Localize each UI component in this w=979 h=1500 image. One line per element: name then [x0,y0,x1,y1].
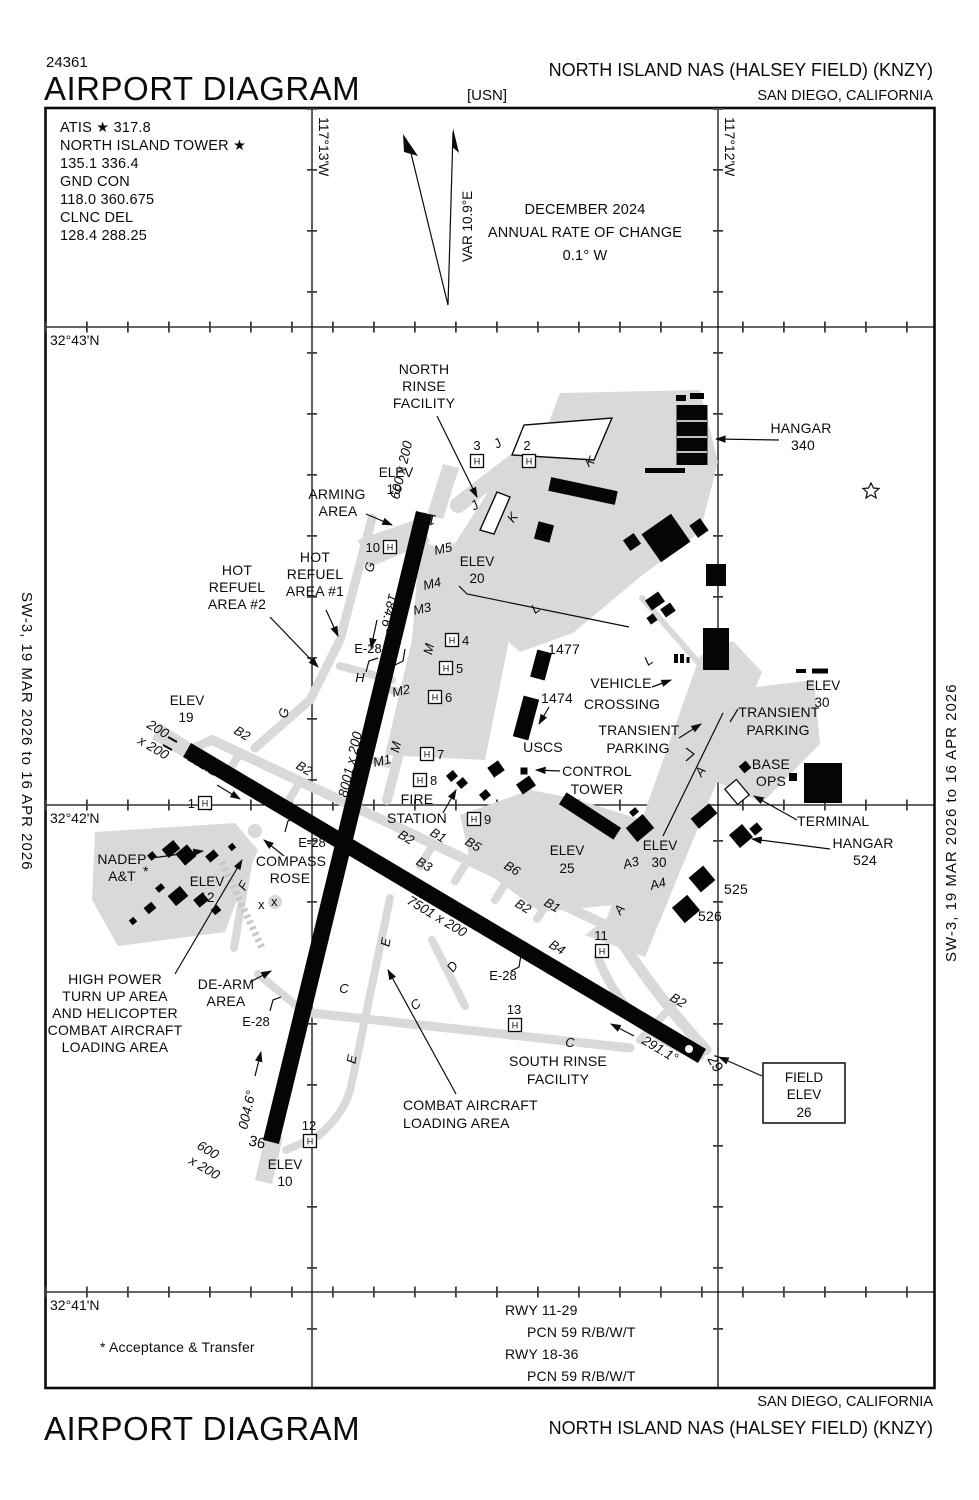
svg-text:H: H [443,663,450,673]
svg-text:x 200: x 200 [186,1152,223,1183]
terminal-arrow [754,796,797,820]
hangar-524-arrow [752,839,830,849]
heading-004-arrow [255,1052,261,1076]
gnd-con-label: GND CON [60,174,130,190]
svg-text:TOWER: TOWER [571,781,624,797]
elev-label: ELEV [460,554,495,569]
footer-airport-name: NORTH ISLAND NAS (HALSEY FIELD) (KNZY) [549,1418,933,1438]
page-title: AIRPORT DIAGRAM [44,70,360,107]
building-1477-label: 1477 [548,641,580,657]
svg-text:3: 3 [473,438,480,453]
nadep-asterisk: * [143,863,149,879]
nadep-apron [92,823,258,946]
hot-refuel-2-label: HOT [222,562,252,578]
hangar-524-building [729,824,753,848]
field-elevation-box: FIELD ELEV 26 [763,1063,845,1123]
svg-text:12: 12 [302,1118,316,1133]
control-tower-building [521,768,528,775]
elev-label: ELEV [643,838,678,853]
helipad-7: H7 [421,747,445,762]
acceptance-note: * Acceptance & Transfer [100,1339,255,1355]
true-north-arrowhead-icon [453,128,460,153]
svg-text:REFUEL: REFUEL [209,579,265,595]
svg-text:H: H [471,814,478,824]
control-tower-label: CONTROL [562,763,632,779]
arming-area-label: ARMING [308,486,365,502]
clnc-del-label: CLNC DEL [60,210,133,226]
svg-text:19: 19 [386,482,401,497]
star-icon [863,483,879,498]
svg-text:PCN 59 R/B/W/T: PCN 59 R/B/W/T [527,1368,636,1384]
transient-parking-label: TRANSIENT [738,704,819,720]
svg-text:H: H [387,542,394,552]
helipad-5: H5 [440,661,464,676]
svg-text:OPS: OPS [756,773,786,789]
svg-text:PARKING: PARKING [606,740,669,756]
svg-text:AREA #1: AREA #1 [286,583,344,599]
svg-text:25: 25 [559,861,574,876]
nadep-label: NADEP [97,851,146,867]
svg-text:26: 26 [796,1105,811,1120]
magnetic-north-arrow [409,145,448,305]
svg-text:9: 9 [484,812,491,827]
north-rinse-label: NORTH [399,361,450,377]
svg-text:13: 13 [507,1002,521,1017]
svg-text:H: H [474,456,481,466]
helipad-4: H4 [446,633,470,648]
svg-text:H: H [599,946,606,956]
svg-text:H: H [307,1136,314,1146]
svg-text:10: 10 [277,1174,292,1189]
svg-text:524: 524 [853,852,877,868]
svg-text:LOADING AREA: LOADING AREA [403,1115,510,1131]
vehicle-crossing-label: VEHICLE [590,675,651,691]
svg-text:ELEV: ELEV [787,1087,822,1102]
building-525-label: 525 [724,881,748,897]
hot-refuel-2-arrow [270,617,318,667]
svg-text:AND HELICOPTER: AND HELICOPTER [52,1005,178,1021]
taxiway-label-b3: B3 [414,854,436,875]
longitude-label-12: 117°12'W [722,117,738,177]
latitude-label-43: 32°43'N [50,332,100,348]
svg-text:LOADING AREA: LOADING AREA [62,1039,169,1055]
svg-text:FIELD: FIELD [785,1070,824,1085]
svg-text:REFUEL: REFUEL [287,566,343,582]
footer-title: AIRPORT DIAGRAM [44,1410,360,1447]
svg-text:FACILITY: FACILITY [393,395,456,411]
taxiway-label-l: L [641,652,656,668]
svg-text:H: H [449,635,456,645]
arresting-gear-label: E-28 [242,1014,269,1029]
hangar-524-label: HANGAR [832,835,893,851]
org-label: [USN] [467,87,507,104]
helipad-1: H1 [188,796,212,811]
svg-text:TURN UP AREA: TURN UP AREA [62,988,168,1004]
building-1474 [513,696,539,741]
building-1474-label: 1474 [541,690,573,706]
svg-text:2: 2 [523,438,530,453]
chart-stock-number: 24361 [46,54,88,71]
svg-text:AREA #2: AREA #2 [208,596,266,612]
svg-text:PCN 59 R/B/W/T: PCN 59 R/B/W/T [527,1324,636,1340]
taxiway-label-e: E [377,936,393,947]
taxiway-c [302,1012,630,1048]
svg-text:4: 4 [462,633,469,648]
svg-text:5: 5 [456,661,463,676]
svg-text:7: 7 [437,747,444,762]
svg-text:1: 1 [188,796,195,811]
helipad-11: H11 [594,928,608,958]
variation-date: DECEMBER 2024 [524,202,645,218]
transient-parking-label: TRANSIENT [598,722,679,738]
hot-refuel-1-arrow [326,610,338,636]
heading-291-arrow [611,1024,634,1036]
building-1474-arrow [539,707,549,724]
svg-text:COMBAT AIRCRAFT: COMBAT AIRCRAFT [48,1022,183,1038]
hangar-340-label: HANGAR [770,420,831,436]
left-edge-effective-dates: SW-3, 19 MAR 2026 to 16 APR 2026 [18,592,35,871]
elev-label: ELEV [268,1157,303,1172]
magnetic-variation: VAR 10.9°E [460,191,475,262]
svg-text:AREA: AREA [207,993,246,1009]
right-edge-effective-dates: SW-3, 19 MAR 2026 to 16 APR 2026 [943,683,960,962]
magnetic-north-arrowhead-icon [403,134,418,156]
helipad-9: H9 [468,812,492,827]
field-elevation-dot [685,1045,693,1053]
footer-city: SAN DIEGO, CALIFORNIA [757,1394,933,1410]
high-power-label: HIGH POWER [68,971,162,987]
helipad-13: H13 [507,1002,522,1032]
taxiway-label-b4: B4 [547,937,568,958]
helipad-3: H3 [471,438,484,468]
taxiway-label-h: H [355,670,365,685]
comm-box: ATIS ★ 317.8 NORTH ISLAND TOWER ★ 135.1 … [60,120,246,244]
tower-freq: 135.1 336.4 [60,156,139,172]
helipad-12: H12 [302,1118,317,1148]
terminal-label: TERMINAL [797,813,869,829]
svg-text:ROSE: ROSE [270,870,310,886]
rwy-11-29-pcn-label: RWY 11-29 [505,1302,578,1318]
taxiway-label-g: G [275,706,292,719]
header: 24361 AIRPORT DIAGRAM [USN] NORTH ISLAND… [44,54,933,107]
compass-rose-circle [248,824,262,838]
svg-text:340: 340 [791,437,815,453]
annual-rate-value: 0.1° W [563,248,608,264]
svg-text:19: 19 [178,710,193,725]
vehicle-crossing-arrow [652,680,671,687]
gnd-con-freq: 118.0 360.675 [60,192,154,208]
svg-text:20: 20 [469,571,484,586]
elev-label: ELEV [379,465,414,480]
taxiway-label-c: C [565,1035,575,1050]
svg-text:FACILITY: FACILITY [527,1071,590,1087]
elev-label: ELEV [806,678,841,693]
runway-designator-29: 29 [703,1052,726,1075]
runway-heading-004: 004.6° [235,1089,259,1131]
svg-text:H: H [202,798,209,808]
hot-refuel-1-label: HOT [300,549,330,565]
elev-label: ELEV [170,693,205,708]
svg-text:STATION: STATION [387,810,447,826]
taxiway-label-b2: B2 [232,723,254,744]
building-526-label: 526 [698,908,722,924]
arresting-gear-label: E-28 [298,835,325,850]
bottom-data: * Acceptance & Transfer RWY 11-29 PCN 59… [100,1302,636,1384]
taxiway-label-c: C [339,981,349,996]
airport-diagram-chart: 24361 AIRPORT DIAGRAM [USN] NORTH ISLAND… [0,0,979,1500]
south-rinse-label: SOUTH RINSE [509,1053,607,1069]
svg-text:H: H [424,749,431,759]
footer: AIRPORT DIAGRAM SAN DIEGO, CALIFORNIA NO… [44,1394,933,1447]
compass-x-mark: x [258,897,265,912]
elev-label: ELEV [550,843,585,858]
svg-text:10: 10 [366,540,380,555]
atis-freq: ATIS ★ 317.8 [60,120,151,136]
helipad-6: H6 [429,690,453,705]
building-526 [672,895,700,923]
true-north-arrow [448,132,453,305]
de-arm-label: DE-ARM [198,976,254,992]
svg-text:H: H [526,456,533,466]
variation-box: VAR 10.9°E DECEMBER 2024 ANNUAL RATE OF … [403,128,682,305]
building-hangar-340 [677,405,708,465]
svg-text:12: 12 [199,890,214,905]
building [703,628,729,670]
latitude-label-41: 32°41'N [50,1297,100,1313]
airport-diagram-page: 24361 AIRPORT DIAGRAM [USN] NORTH ISLAND… [0,0,979,1500]
latitude-label-42: 32°42'N [50,810,100,826]
building-525 [689,866,716,893]
svg-text:8: 8 [430,773,437,788]
compass-x-mark: x [271,894,278,909]
control-tower-arrow [536,770,560,771]
svg-text:H: H [417,775,424,785]
arresting-gear-label: E-28 [354,641,381,656]
svg-text:CROSSING: CROSSING [584,696,660,712]
svg-text:11: 11 [594,928,608,943]
fire-station-label: FIRE [401,791,434,807]
taxiway-d [432,940,465,1006]
taxiway-label-j: J [490,435,505,452]
svg-text:A&T: A&T [108,868,136,884]
svg-text:H: H [512,1020,519,1030]
airport-name: NORTH ISLAND NAS (HALSEY FIELD) (KNZY) [549,60,933,80]
svg-text:RINSE: RINSE [402,378,446,394]
combat-loading-label: COMBAT AIRCRAFT [403,1097,538,1113]
svg-text:H: H [432,692,439,702]
tower-name: NORTH ISLAND TOWER ★ [60,138,246,154]
svg-text:PARKING: PARKING [746,722,809,738]
svg-text:6: 6 [445,690,452,705]
compass-rose-label: COMPASS [256,853,326,869]
uscs-label: USCS [523,739,563,755]
base-ops-label: BASE [752,756,790,772]
longitude-label-13: 117°13'W [316,117,332,177]
building [804,763,842,803]
rwy-18-36-pcn-label: RWY 18-36 [505,1346,579,1362]
annual-rate-label: ANNUAL RATE OF CHANGE [488,225,682,241]
clnc-del-freq: 128.4 288.25 [60,228,147,244]
elev-label: ELEV [190,874,225,889]
hangar-340-arrow [716,439,779,440]
airport-city: SAN DIEGO, CALIFORNIA [757,88,933,104]
svg-text:30: 30 [651,855,666,870]
helipad-8: H8 [414,773,438,788]
svg-text:AREA: AREA [319,503,358,519]
